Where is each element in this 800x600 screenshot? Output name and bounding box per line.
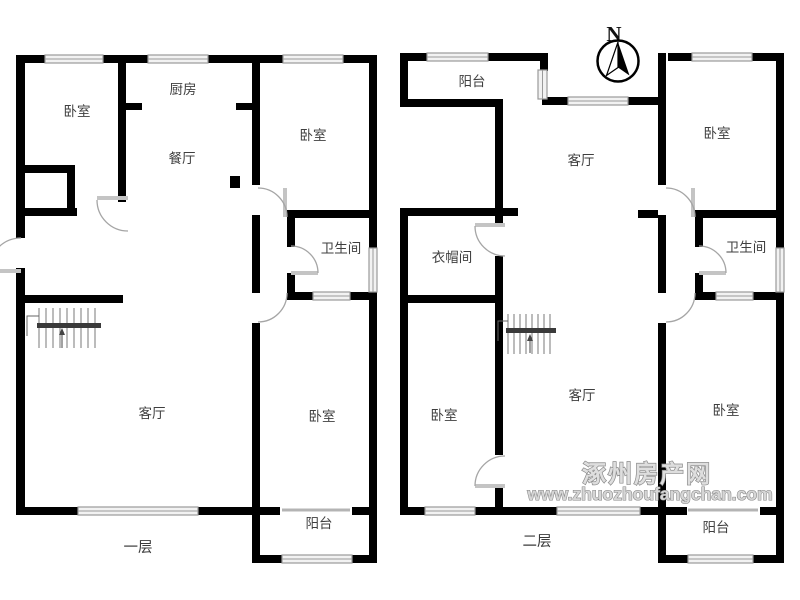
north-arrow: N [598,22,639,82]
window [688,555,753,563]
bathroom-door [699,246,726,273]
room-label-kitchen: 厨房 [170,82,197,97]
floor1-labels: 卧室 厨房 餐厅 卧室 卫生间 客厅 卧室 阳台 一层 [64,82,362,556]
compass-needle-right [618,42,630,76]
floor1-stairs [27,308,101,348]
room-label-bedroom-tr: 卧室 [300,127,327,143]
window [78,507,198,515]
bedroom-br-door [258,293,287,322]
window [692,53,752,61]
floor2-stairs [498,314,556,354]
window [45,55,103,63]
watermark-site-url: www.zhuozhoufangchan.com [526,484,772,504]
floor-plan-canvas: N 卧室 厨房 餐厅 卧室 卫生间 客厅 卧室 阳台 一层 阳台 客厅 卧室 卫… [0,0,800,600]
watermark: 涿州房产网 www.zhuozhoufangchan.com [526,460,772,504]
window [148,55,208,63]
room-label-bathroom: 卫生间 [321,241,362,256]
room-label-bathroom: 卫生间 [726,240,767,255]
room-label-cloakroom: 衣帽间 [432,250,473,265]
dining-door [97,198,128,231]
room-label-living-lower: 客厅 [569,387,596,403]
bedroom-tr-door [258,188,287,217]
room-label-balcony-bottom: 阳台 [703,520,730,535]
window [283,55,343,63]
room-label-balcony-top: 阳台 [459,74,486,89]
stair-handrail [506,328,556,333]
bedroom-tr-door [666,188,695,217]
floor-plan-image: N 卧室 厨房 餐厅 卧室 卫生间 客厅 卧室 阳台 一层 阳台 客厅 卧室 卫… [0,0,800,600]
floor1-label: 一层 [124,540,153,556]
window [313,292,350,300]
window [282,555,352,563]
room-label-living: 客厅 [139,405,166,421]
room-label-dining: 餐厅 [169,151,196,166]
compass-needle-left [607,42,619,76]
window [776,248,784,292]
room-label-bedroom-tl: 卧室 [64,103,91,119]
window [716,292,753,300]
room-label-living-upper: 客厅 [568,152,595,168]
window [427,53,488,61]
bathroom-door [291,246,318,273]
entry-door [0,238,21,271]
bedroom-bl-door [475,456,505,486]
floor2-doors [475,188,726,486]
window [369,248,377,292]
room-label-bedroom-tr: 卧室 [704,125,731,141]
window [557,507,640,515]
room-label-bedroom-br: 卧室 [713,402,740,418]
window [568,97,628,105]
room-label-bedroom-br: 卧室 [309,408,336,424]
cloakroom-door [475,225,505,256]
room-label-balcony: 阳台 [306,516,333,531]
room-label-bedroom-bl: 卧室 [431,407,458,423]
stair-handrail [37,323,101,328]
bedroom-br-door [666,293,695,322]
floor2-label: 二层 [523,534,552,550]
window [538,70,547,99]
window [425,507,475,515]
